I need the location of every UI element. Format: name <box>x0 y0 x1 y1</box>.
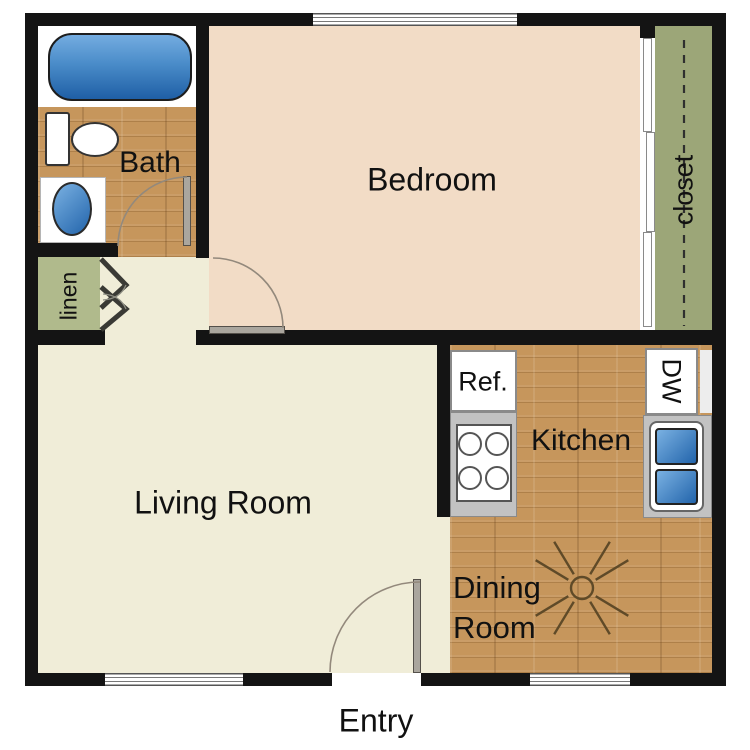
dining-room-label: Dining Room <box>453 568 541 648</box>
bath-sink-basin <box>52 182 92 236</box>
toilet-bowl <box>71 122 119 157</box>
living-room-window <box>105 673 243 686</box>
toilet-tank <box>45 112 70 166</box>
refrigerator-label: Ref. <box>458 367 508 398</box>
bedroom-door-leaf <box>209 326 285 334</box>
entry-door-leaf <box>413 579 421 673</box>
outer-wall-bottom-seg2 <box>243 673 332 686</box>
dining-room-label-line1: Dining <box>453 568 541 608</box>
outer-wall-left <box>25 13 38 686</box>
outer-wall-bottom-seg3 <box>421 673 530 686</box>
closet-jamb-stub <box>640 26 655 38</box>
dishwasher-label: DW <box>656 359 687 404</box>
kitchen-sink-basin-top <box>655 428 698 465</box>
linen-label: linen <box>56 272 83 321</box>
dishwasher-counter-sliver <box>700 350 712 413</box>
outer-wall-top-right-segment <box>517 13 726 26</box>
living-room-label: Living Room <box>134 485 312 522</box>
kitchen-west-wall <box>437 345 450 517</box>
burner-bottom-right <box>485 466 509 490</box>
entry-label: Entry <box>339 703 414 740</box>
dining-room-window <box>530 673 630 686</box>
bath-bedroom-wall <box>196 13 209 258</box>
burner-top-right <box>485 432 509 456</box>
outer-wall-bottom-seg4 <box>630 673 726 686</box>
closet-label: closet <box>669 155 700 226</box>
outer-wall-right <box>712 13 726 686</box>
bath-south-wall <box>25 243 118 257</box>
burner-bottom-left <box>458 466 482 490</box>
linen-south-wall <box>25 330 105 345</box>
bath-door-leaf <box>183 176 191 246</box>
bathtub <box>48 33 192 101</box>
outer-wall-bottom-seg1 <box>25 673 105 686</box>
kitchen-label: Kitchen <box>531 424 631 458</box>
closet-slider-panel-2 <box>646 132 655 232</box>
outer-wall-top-left-segment <box>25 13 313 26</box>
bedroom-window <box>313 13 517 26</box>
closet-slider-panel-3 <box>643 232 652 327</box>
floor-plan: Bath Bedroom closet linen Living Room Ki… <box>0 0 750 750</box>
bath-label: Bath <box>119 146 181 180</box>
dining-room-label-line2: Room <box>453 608 541 648</box>
kitchen-sink-basin-bottom <box>655 469 698 505</box>
burner-top-left <box>458 432 482 456</box>
closet-slider-panel-1 <box>643 38 652 132</box>
bedroom-label: Bedroom <box>367 162 497 199</box>
